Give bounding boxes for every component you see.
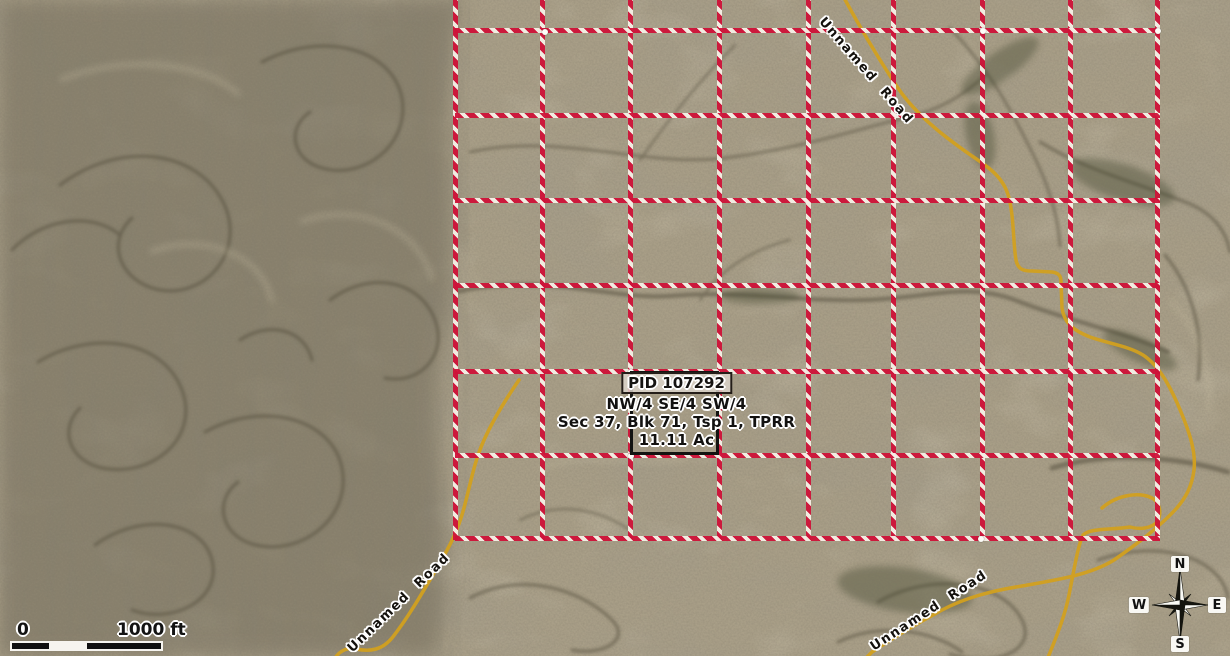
grid-line-vertical [628, 0, 633, 540]
parcel-vertex-dot [980, 28, 986, 34]
grid-line-horizontal [455, 453, 1160, 458]
scalebar-distance-label: 1000 ft [117, 620, 186, 640]
grid-line-vertical [891, 0, 896, 540]
scalebar [10, 641, 163, 651]
parcel-legal-section: Sec 37, Blk 71, Tsp 1, TPRR [558, 413, 795, 431]
map-canvas[interactable]: PID 107292 NW/4 SE/4 SW/4 Sec 37, Blk 71… [0, 0, 1230, 656]
compass-west-label: W [1129, 597, 1149, 613]
parcel-acreage: 11.11 Ac [558, 431, 795, 449]
parcel-vertex-dot [978, 536, 984, 542]
grid-line-vertical [453, 0, 458, 540]
compass-north-label: N [1171, 556, 1189, 572]
parcel-grid [0, 0, 1230, 656]
grid-line-horizontal [455, 198, 1160, 203]
parcel-vertex-dot [1155, 28, 1161, 34]
grid-line-vertical [806, 0, 811, 540]
grid-line-vertical [1068, 0, 1073, 540]
parcel-label: PID 107292 NW/4 SE/4 SW/4 Sec 37, Blk 71… [558, 372, 795, 449]
compass-rose: N E S W [1130, 552, 1230, 656]
parcel-vertex-dot [542, 29, 548, 35]
grid-line-vertical [980, 0, 985, 540]
scalebar-segment [49, 643, 86, 649]
grid-line-vertical [1155, 0, 1160, 540]
compass-east-label: E [1208, 597, 1226, 613]
grid-line-horizontal [455, 28, 1160, 33]
compass-south-label: S [1171, 636, 1189, 652]
scalebar-zero-label: 0 [17, 620, 29, 640]
parcel-legal-quarter: NW/4 SE/4 SW/4 [558, 395, 795, 413]
grid-line-horizontal [455, 536, 1160, 541]
grid-line-vertical [540, 0, 545, 540]
grid-line-horizontal [455, 283, 1160, 288]
grid-line-vertical [717, 0, 722, 540]
grid-line-horizontal [455, 113, 1160, 118]
parcel-pid-badge: PID 107292 [621, 372, 732, 394]
